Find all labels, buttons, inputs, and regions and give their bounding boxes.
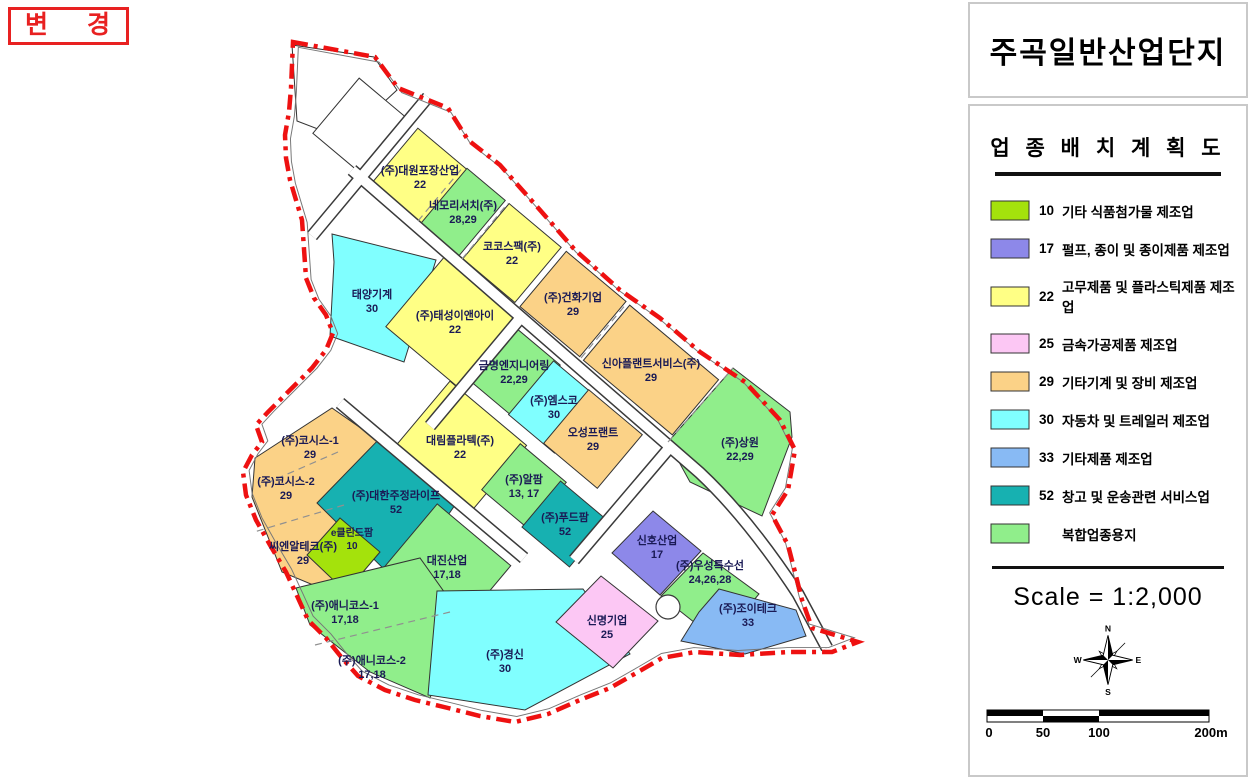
parcel-code: 29 [587, 441, 599, 453]
parcel-code: 17,18 [433, 569, 461, 581]
parcel-code: 10 [346, 541, 358, 552]
legend-code: 30 [1039, 412, 1057, 427]
legend-label: 기타 식품첨가물 제조업 [1062, 201, 1194, 221]
parcel-name: (주)애니코스-2 [338, 653, 406, 667]
legend-swatch [990, 200, 1030, 221]
legend-label: 금속가공제품 제조업 [1062, 334, 1178, 354]
parcel-code: 30 [366, 303, 378, 315]
legend-swatch [990, 447, 1030, 468]
legend-code: 33 [1039, 450, 1057, 465]
parcel-name: (주)경신 [486, 647, 524, 661]
legend-label: 기타기계 및 장비 제조업 [1062, 372, 1197, 392]
compass-east-label: E [1136, 655, 1142, 665]
page: 변 경 [0, 0, 1250, 781]
parcel-code: 33 [742, 617, 754, 629]
parcel-name: (주)애니코스-1 [311, 598, 379, 612]
parcel-name: 대진산업 [427, 553, 467, 567]
parcel-name: (주)조이테크 [719, 601, 777, 615]
legend-swatch [990, 409, 1030, 430]
legend-item: 22 고무제품 및 플라스틱제품 제조업 [990, 276, 1246, 316]
parcel-name: (주)건화기업 [544, 290, 602, 304]
scalebar-tick-50: 50 [1036, 725, 1050, 740]
legend-item: 10 기타 식품첨가물 제조업 [990, 200, 1246, 221]
parcel-code: 24,26,28 [689, 574, 732, 586]
parcel-name: 신아플랜트서비스(주) [602, 356, 701, 370]
parcel-name: 대림플라텍(주) [426, 433, 494, 447]
scalebar-tick-200: 200m [1194, 725, 1227, 740]
parcel-code: 29 [297, 555, 309, 567]
parcel-name: 오성프랜트 [568, 425, 619, 439]
parcel-name: (주)알팜 [505, 472, 543, 486]
legend-label: 자동차 및 트레일러 제조업 [1062, 410, 1210, 430]
parcel-code: 52 [559, 526, 571, 538]
legend-swatch [990, 238, 1030, 259]
compass-south-label: S [1105, 687, 1111, 697]
legend-swatch [990, 333, 1030, 354]
parcel-name: (주)대한주정라이프 [352, 488, 440, 502]
legend-label: 창고 및 운송관련 서비스업 [1062, 486, 1210, 506]
parcel-code: 17,18 [331, 614, 359, 626]
parcel-code: 22 [414, 179, 426, 191]
legend-item: 17 펄프, 종이 및 종이제품 제조업 [990, 238, 1246, 259]
parcel-name: (주)대원포장산업 [381, 163, 459, 177]
parcel-code: 22,29 [500, 374, 528, 386]
legend-code: 25 [1039, 336, 1057, 351]
legend-code: 29 [1039, 374, 1057, 389]
parcel-code: 28,29 [449, 214, 477, 226]
legend-label: 고무제품 및 플라스틱제품 제조업 [1062, 276, 1246, 316]
page-title: 주곡일반산업단지 [990, 28, 1227, 72]
parcel-name: (주)태성이앤아이 [416, 308, 494, 322]
zoning-map: (주)대원포장산업 22 네모리서치(주) 28,29 코코스팩(주) 22 (… [0, 0, 965, 781]
legend-swatch [990, 371, 1030, 392]
parcel-name: 코코스팩(주) [483, 239, 541, 253]
parcel-name: (주)코시스-2 [257, 475, 315, 488]
legend-code: 52 [1039, 488, 1057, 503]
parcel-name: 네모리서치(주) [429, 198, 497, 212]
parcel-code: 29 [280, 490, 292, 502]
legend-label: 펄프, 종이 및 종이제품 제조업 [1062, 239, 1230, 259]
parcel-code: 17,18 [358, 669, 386, 681]
parcel-code: 22 [454, 449, 466, 461]
legend-label: 기타제품 제조업 [1062, 448, 1153, 468]
parcel-code: 17 [651, 549, 663, 561]
legend-code: 17 [1039, 241, 1057, 256]
scalebar-tick-0: 0 [985, 725, 992, 740]
parcel-name: (주)코시스-1 [281, 434, 339, 447]
parcel-code: 29 [645, 372, 657, 384]
parcel-code: 22,29 [726, 451, 754, 463]
legend-swatch [990, 286, 1030, 307]
legend-item: 33 기타제품 제조업 [990, 447, 1246, 468]
legend-item: 52 창고 및 운송관련 서비스업 [990, 485, 1246, 506]
scale-text: Scale = 1:2,000 [970, 583, 1246, 612]
legend-item: 복합업종용지 [990, 523, 1246, 544]
title-panel: 주곡일반산업단지 [968, 2, 1248, 98]
separator-line [992, 566, 1224, 569]
parcel-name: 신명기업 [587, 613, 627, 627]
parcel-name: e클린드팜 [331, 526, 374, 539]
parcel-name: 신호산업 [637, 533, 677, 547]
legend-code: 10 [1039, 203, 1057, 218]
legend-label: 복합업종용지 [1062, 524, 1137, 544]
parcel-code: 30 [548, 409, 560, 421]
cul-de-sac [656, 595, 680, 619]
legend-swatch [990, 485, 1030, 506]
parcel-code: 30 [499, 663, 511, 675]
legend-item: 29 기타기계 및 장비 제조업 [990, 371, 1246, 392]
legend-panel: 업 종 배 치 계 획 도 10 기타 식품첨가물 제조업 17 펄프, 종이 … [968, 104, 1248, 777]
parcel-code: 22 [506, 255, 518, 267]
compass-north-label: N [1105, 624, 1111, 634]
compass-west-label: W [1074, 655, 1083, 665]
parcel-code: 29 [567, 306, 579, 318]
parcel-name: (주)우성특수선 [676, 558, 744, 572]
legend-code: 22 [1039, 289, 1057, 304]
parcel-name: 씨엔알테크(주) [269, 539, 337, 553]
parcel-code: 29 [304, 449, 316, 461]
parcel-name: 태양기계 [352, 287, 392, 301]
legend-item: 30 자동차 및 트레일러 제조업 [990, 409, 1246, 430]
scale-bar: 0 50 100 200m [983, 708, 1233, 746]
legend-swatch [990, 523, 1030, 544]
parcel-name: (주)상원 [721, 435, 759, 449]
parcel-code: 25 [601, 629, 613, 641]
parcel-code: 22 [449, 324, 461, 336]
side-panel: 주곡일반산업단지 업 종 배 치 계 획 도 10 기타 식품첨가물 제조업 1… [966, 0, 1250, 781]
parcel-name: (주)엠스코 [530, 394, 578, 407]
parcel-name: 금명엔지니어링 [479, 358, 550, 372]
compass-rose-icon: N E S W [1070, 622, 1146, 698]
parcel-name: (주)푸드팜 [541, 510, 589, 524]
legend-title: 업 종 배 치 계 획 도 [970, 132, 1246, 162]
parcel-code: 13, 17 [509, 488, 540, 500]
scalebar-tick-100: 100 [1088, 725, 1110, 740]
parcel-code: 52 [390, 504, 402, 516]
legend-title-underline [995, 172, 1221, 176]
legend-item: 25 금속가공제품 제조업 [990, 333, 1246, 354]
